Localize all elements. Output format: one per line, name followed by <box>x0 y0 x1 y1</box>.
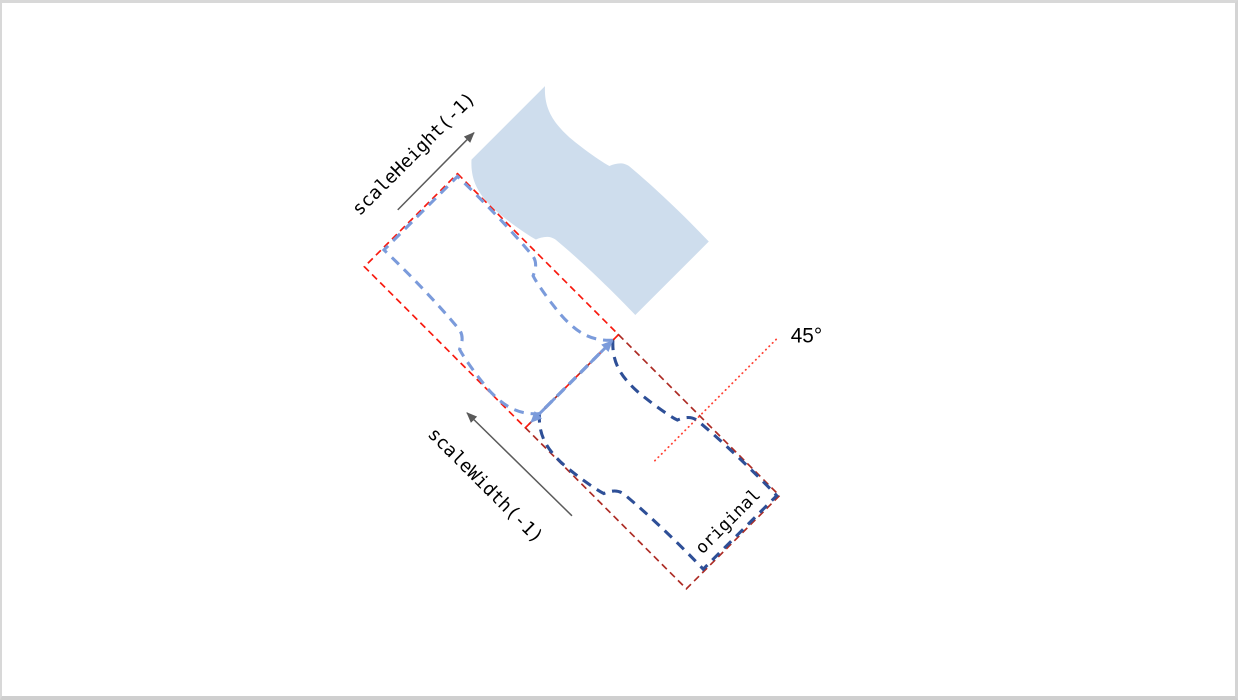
angle-label: 45° <box>791 325 822 348</box>
scale-width-label: scaleWidth(-1) <box>423 424 547 548</box>
scale-height-label: scaleHeight(-1) <box>348 88 480 220</box>
scale-width-arrow <box>467 413 572 516</box>
original-flag-outline <box>526 336 777 587</box>
result-flag-filled <box>458 82 709 333</box>
slide-canvas: scaleHeight(-1) scaleWidth(-1) original … <box>0 0 1238 700</box>
angle-reference-line <box>655 337 778 460</box>
mirror-axis-arrow <box>527 337 617 427</box>
transform-diagram: scaleHeight(-1) scaleWidth(-1) original … <box>2 3 1235 696</box>
